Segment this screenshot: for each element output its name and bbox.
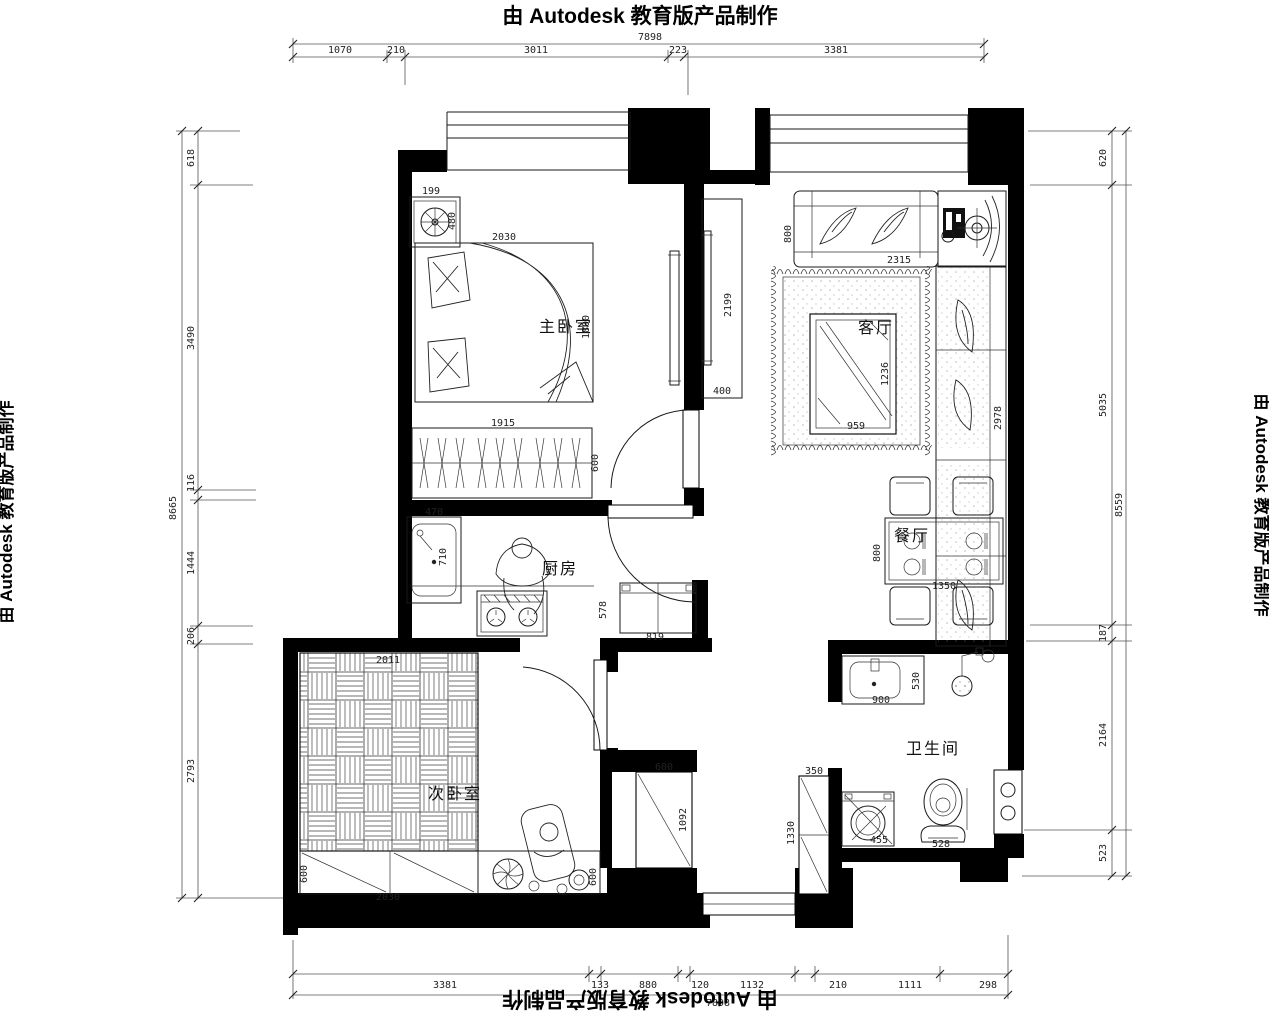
svg-text:800: 800 bbox=[872, 544, 883, 562]
label-dining-room: 餐厅 bbox=[894, 527, 930, 545]
svg-text:3381: 3381 bbox=[433, 980, 457, 991]
svg-text:455: 455 bbox=[870, 835, 888, 846]
svg-text:710: 710 bbox=[438, 548, 449, 566]
svg-text:223: 223 bbox=[669, 45, 687, 56]
water-heater bbox=[994, 770, 1022, 834]
svg-text:959: 959 bbox=[847, 421, 865, 432]
bay-window-living bbox=[770, 115, 968, 172]
svg-text:116: 116 bbox=[186, 474, 197, 492]
floor-plan-sheet: 7898 1070 210 3011 223 3381 7898 3381 13… bbox=[0, 0, 1269, 1015]
label-bathroom: 卫生间 bbox=[906, 740, 960, 758]
svg-text:600: 600 bbox=[590, 454, 601, 472]
label-second-bedroom: 次卧室 bbox=[428, 785, 482, 803]
floor-plan-drawing: 7898 1070 210 3011 223 3381 7898 3381 13… bbox=[0, 0, 1269, 1015]
svg-text:800: 800 bbox=[783, 225, 794, 243]
dimension-chain-left: 8665 618 3490 116 1444 206 2793 bbox=[168, 127, 283, 902]
svg-text:523: 523 bbox=[1098, 844, 1109, 862]
fridge bbox=[620, 583, 696, 633]
kitchen-door bbox=[608, 505, 695, 602]
svg-text:3011: 3011 bbox=[524, 45, 548, 56]
toilet bbox=[921, 779, 967, 842]
svg-text:600: 600 bbox=[588, 868, 599, 886]
svg-text:528: 528 bbox=[932, 839, 950, 850]
svg-text:530: 530 bbox=[911, 672, 922, 690]
svg-text:298: 298 bbox=[979, 980, 997, 991]
label-master-bedroom: 主卧室 bbox=[539, 318, 593, 336]
svg-text:600: 600 bbox=[299, 865, 310, 883]
svg-text:600: 600 bbox=[655, 762, 673, 773]
svg-text:187: 187 bbox=[1098, 624, 1109, 642]
svg-text:2030: 2030 bbox=[492, 232, 516, 243]
svg-text:1236: 1236 bbox=[880, 362, 891, 386]
svg-text:2011: 2011 bbox=[376, 655, 400, 666]
corner-table bbox=[938, 191, 1006, 267]
watermark-top: 由 Autodesk 教育版产品制作 bbox=[502, 4, 777, 28]
hall-cabinet bbox=[799, 776, 829, 894]
sofa bbox=[794, 191, 938, 267]
svg-text:210: 210 bbox=[829, 980, 847, 991]
svg-text:620: 620 bbox=[1098, 149, 1109, 167]
watermark-bottom: 由 Autodesk 教育版产品制作 bbox=[502, 987, 777, 1011]
svg-text:1092: 1092 bbox=[678, 808, 689, 832]
svg-text:5035: 5035 bbox=[1098, 393, 1109, 417]
svg-text:2164: 2164 bbox=[1098, 723, 1109, 747]
svg-text:1111: 1111 bbox=[898, 980, 922, 991]
dimension-chain-top: 7898 1070 210 3011 223 3381 bbox=[289, 32, 988, 95]
svg-text:618: 618 bbox=[186, 149, 197, 167]
svg-text:2978: 2978 bbox=[993, 406, 1004, 430]
svg-text:199: 199 bbox=[422, 186, 440, 197]
svg-text:819: 819 bbox=[646, 632, 664, 643]
drawer-unit bbox=[300, 851, 478, 894]
watermark-left: 由 Autodesk 教育版产品制作 bbox=[0, 401, 16, 624]
bay-window-master bbox=[447, 112, 630, 170]
svg-text:3381: 3381 bbox=[824, 45, 848, 56]
dimension-chain-right: 8559 620 5035 187 2164 523 bbox=[1022, 127, 1132, 880]
dim-right-total: 8559 bbox=[1114, 493, 1125, 517]
stove bbox=[477, 591, 547, 636]
svg-text:350: 350 bbox=[805, 766, 823, 777]
svg-text:1444: 1444 bbox=[186, 551, 197, 575]
svg-text:1915: 1915 bbox=[491, 418, 515, 429]
bedroom-door bbox=[523, 660, 607, 750]
svg-text:1070: 1070 bbox=[328, 45, 352, 56]
second-bedroom bbox=[300, 653, 607, 894]
master-bedroom bbox=[410, 197, 699, 498]
svg-text:578: 578 bbox=[598, 601, 609, 619]
dim-top-total: 7898 bbox=[638, 32, 662, 43]
svg-text:3490: 3490 bbox=[186, 326, 197, 350]
telephone bbox=[942, 208, 965, 242]
shower bbox=[952, 648, 994, 696]
kitchen-sink bbox=[407, 517, 461, 603]
svg-text:206: 206 bbox=[186, 627, 197, 645]
wardrobe bbox=[412, 428, 592, 498]
svg-text:900: 900 bbox=[872, 695, 890, 706]
svg-text:2030: 2030 bbox=[376, 892, 400, 903]
svg-text:470: 470 bbox=[425, 507, 443, 518]
svg-text:400: 400 bbox=[713, 386, 731, 397]
svg-text:480: 480 bbox=[447, 212, 458, 230]
label-kitchen: 厨房 bbox=[542, 560, 578, 578]
fan-stool bbox=[493, 859, 523, 889]
watermark-right: 由 Autodesk 教育版产品制作 bbox=[1252, 394, 1269, 617]
svg-text:2315: 2315 bbox=[887, 255, 911, 266]
svg-text:1350: 1350 bbox=[932, 581, 956, 592]
svg-text:2793: 2793 bbox=[186, 759, 197, 783]
dim-left-total: 8665 bbox=[168, 496, 179, 520]
svg-text:1330: 1330 bbox=[786, 821, 797, 845]
entry-threshold bbox=[703, 893, 795, 915]
svg-text:2199: 2199 bbox=[723, 293, 734, 317]
svg-text:210: 210 bbox=[387, 45, 405, 56]
master-door bbox=[611, 410, 699, 488]
label-living-room: 客厅 bbox=[858, 319, 894, 337]
